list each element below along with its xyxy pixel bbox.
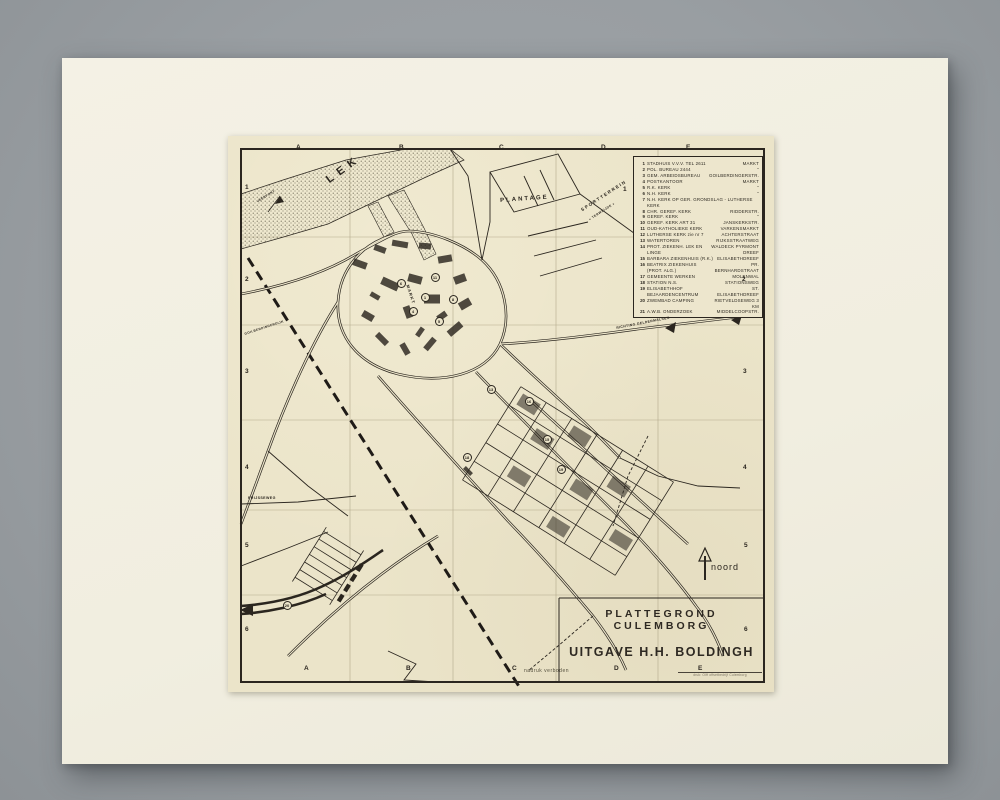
- legend-item: 7N.H. KERK OP GER. GRONDSLAG - LUTHERSE …: [637, 197, 759, 209]
- grid-label-bottom-B: B: [406, 665, 411, 672]
- legend-item: 19ELISABETHHOF BEJAARDENCENTRUMST. ELISA…: [637, 286, 759, 298]
- legend-item-name: PROT. ZIEKENH. LEK EN LINGE: [647, 244, 707, 256]
- legend-item-location: ST. ELISABETHDREEF: [709, 286, 759, 298]
- grid-label-bottom-C: C: [512, 665, 517, 672]
- poi-marker-16: 16: [525, 397, 534, 406]
- legend-item-number: 14: [637, 244, 645, 250]
- grid-label-top-E: E: [686, 144, 691, 151]
- legend-item-number: 20: [637, 298, 645, 304]
- grid-label-top-A: A: [296, 144, 301, 151]
- grid-label-right-2: 2: [742, 276, 746, 283]
- direction-arrows: [240, 315, 742, 616]
- grid-label-right-4: 4: [743, 464, 747, 471]
- legend-item-location: RIETVELDSEWEG 3 KM: [709, 298, 759, 310]
- grid-label-top-C: C: [499, 144, 504, 151]
- poi-marker-20: 20: [283, 601, 292, 610]
- legend-item-location: PR. BERNHARDSTRAAT: [709, 262, 759, 274]
- legend-item-number: 21: [637, 309, 645, 315]
- legend-box: 1STADHUIS V.V.V. TEL 2611MARKT2POL. BURE…: [633, 156, 763, 318]
- north-arrow-icon: [699, 548, 711, 580]
- poi-marker-5: 5: [435, 317, 444, 326]
- grid-label-bottom-A: A: [304, 665, 309, 672]
- legend-item: 20ZWEMBAD CAMPINGRIETVELDSEWEG 3 KM: [637, 298, 759, 310]
- legend-item-number: 16: [637, 262, 645, 268]
- mat-board: 1STADHUIS V.V.V. TEL 2611MARKT2POL. BURE…: [62, 58, 948, 764]
- street-label: PRIJSSEWEG: [248, 496, 276, 500]
- grid-label-left-6: 6: [245, 626, 249, 633]
- grid-label-top-B: B: [399, 144, 404, 151]
- poi-marker-15: 15: [543, 435, 552, 444]
- legend-item-name: ZWEMBAD CAMPING: [647, 298, 707, 304]
- old-town-blocks: [352, 240, 473, 476]
- grid-label-right-5: 5: [744, 542, 748, 549]
- legend-item-number: 7: [637, 197, 645, 203]
- grid-label-left-2: 2: [245, 276, 249, 283]
- north-label: noord: [711, 562, 739, 572]
- railway-line: [248, 258, 520, 688]
- grid-label-top-D: D: [601, 144, 606, 151]
- map-publisher: UITGAVE H.H. BOLDINGH: [559, 645, 764, 659]
- legend-item-location: WALDECK PYRMONT DREEF: [709, 244, 759, 256]
- legend-item-number: 19: [637, 286, 645, 292]
- poi-marker-19: 19: [557, 465, 566, 474]
- grid-label-left-1: 1: [245, 184, 249, 191]
- title-block: PLATTEGROND CULEMBORG UITGAVE H.H. BOLDI…: [559, 598, 764, 682]
- legend-item: 14PROT. ZIEKENH. LEK EN LINGEWALDECK PYR…: [637, 244, 759, 256]
- legend-item: 21A.W.B. ONDERZOEKMIDDELCOOPSTR.: [637, 309, 759, 315]
- poi-marker-18: 18: [463, 453, 472, 462]
- district-southeast: [463, 387, 674, 576]
- legend-item-name: BEATRIX ZIEKENHUIS (PROT. ALG.): [647, 262, 707, 274]
- grid-label-left-4: 4: [245, 464, 249, 471]
- grid-label-right-1: 1: [623, 186, 627, 193]
- poi-marker-8: 8: [449, 295, 458, 304]
- grid-label-left-3: 3: [245, 368, 249, 375]
- grid-label-right-3: 3: [743, 368, 747, 375]
- legend-item-name: N.H. KERK OP GER. GRONDSLAG - LUTHERSE K…: [647, 197, 757, 209]
- poi-marker-1: 1: [421, 293, 430, 302]
- legend-item: 16BEATRIX ZIEKENHUIS (PROT. ALG.)PR. BER…: [637, 262, 759, 274]
- legend-item-name: A.W.B. ONDERZOEK: [647, 309, 715, 315]
- poi-marker-11: 11: [431, 273, 440, 282]
- legend-rows: 1STADHUIS V.V.V. TEL 2611MARKT2POL. BURE…: [637, 161, 759, 315]
- legend-item-name: ELISABETHHOF BEJAARDENCENTRUM: [647, 286, 707, 298]
- district-southwest: [292, 527, 370, 609]
- map-title: PLATTEGROND CULEMBORG: [559, 608, 764, 632]
- poi-marker-13: 13: [487, 385, 496, 394]
- legend-item-location: ”: [757, 191, 759, 197]
- legend-item-location: MIDDELCOOPSTR.: [717, 309, 759, 315]
- printer-imprint: druk: Olff offsetbedrijf Culemborg: [678, 672, 762, 677]
- copyright-note: nadruk verboden: [524, 668, 569, 674]
- grid-label-left-5: 5: [245, 542, 249, 549]
- map-sheet: 1STADHUIS V.V.V. TEL 2611MARKT2POL. BURE…: [228, 136, 774, 692]
- poi-marker-6: 6: [397, 279, 406, 288]
- photo-background: 1STADHUIS V.V.V. TEL 2611MARKT2POL. BURE…: [0, 0, 1000, 800]
- poi-marker-4: 4: [409, 307, 418, 316]
